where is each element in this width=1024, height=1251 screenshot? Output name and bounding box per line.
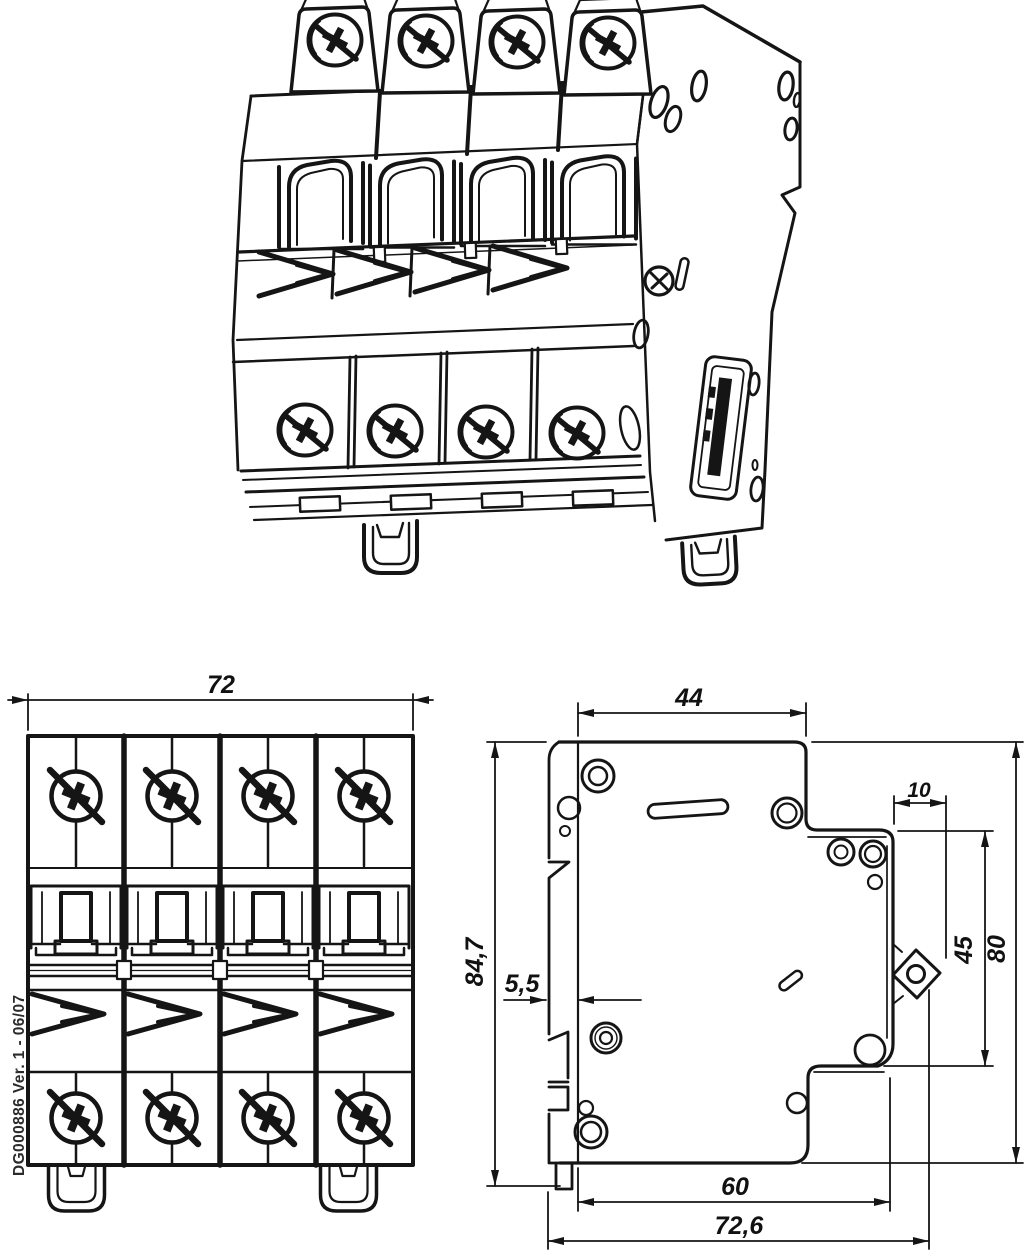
dim-label-front-height: 45 <box>950 935 978 965</box>
front-top-screw-3 <box>242 770 294 822</box>
top-terminal-screw-4 <box>582 18 635 69</box>
top-terminal-screw-2 <box>400 16 453 67</box>
iso-bottom-strips <box>243 465 652 520</box>
side-panel <box>632 6 801 540</box>
bottom-terminal-screw-3 <box>460 407 513 458</box>
front-din-clip-right <box>321 1165 377 1211</box>
terminal-funnel-rim <box>617 405 644 452</box>
iso-arrow-band <box>237 246 633 340</box>
front-bottom-screw-1 <box>50 1092 102 1144</box>
dim-label-total-height: 84,7 <box>461 937 489 987</box>
iso-din-clip-right <box>682 537 737 586</box>
document-code-label: DG000886 Ver. 1 - 06/07 <box>11 994 28 1176</box>
dim-label-total-depth: 72,6 <box>715 1212 765 1240</box>
terminal-screw-side <box>893 950 940 998</box>
front-bottom-screw-2 <box>146 1092 198 1144</box>
iso-left-edge <box>233 96 251 470</box>
front-top-screw-2 <box>146 770 198 822</box>
dim-label-body-height: 80 <box>983 935 1011 963</box>
iso-toggles <box>279 156 636 249</box>
dim-label-top-depth: 44 <box>674 684 703 712</box>
dim-label-rail-plate: 5,5 <box>505 970 541 998</box>
bottom-terminal-screw-1 <box>279 405 332 456</box>
isometric-view <box>233 0 801 585</box>
panel-slot <box>675 258 689 291</box>
panel-hole-small <box>753 460 758 470</box>
dim-label-front-width: 72 <box>207 671 235 699</box>
front-bottom-screw-3 <box>242 1092 294 1144</box>
terminal-clamp-window <box>690 356 753 501</box>
front-bottom-screw-4 <box>338 1092 390 1144</box>
front-top-screw-1 <box>50 770 102 822</box>
front-top-screw-4 <box>338 770 390 822</box>
side-view: 44 10 84,7 5,5 45 80 60 <box>461 684 1023 1249</box>
bottom-terminal-screw-2 <box>369 406 422 457</box>
side-body-outline <box>559 742 893 1163</box>
flange-hole-small <box>793 93 801 108</box>
panel-hole <box>632 319 651 349</box>
dim-label-front-step: 10 <box>907 779 931 802</box>
dim-label-body-depth: 60 <box>721 1173 749 1201</box>
front-din-clip-left <box>49 1165 105 1211</box>
iso-din-clip-left <box>364 521 417 573</box>
top-terminal-screw-1 <box>309 15 362 66</box>
top-terminal-screw-3 <box>491 17 544 68</box>
technical-drawing-page: 72 DG000886 Ver. 1 - 06/07 <box>0 0 1024 1251</box>
panel-hole <box>690 70 709 102</box>
front-view: 72 DG000886 Ver. 1 - 06/07 <box>8 671 433 1211</box>
flange-hole <box>784 117 799 140</box>
dim-front-step <box>894 796 946 958</box>
iso-bottom-terminals <box>233 346 643 471</box>
flange-hole <box>777 71 795 101</box>
bottom-terminal-screw-4 <box>551 408 604 459</box>
breaker-drawing-svg: 72 DG000886 Ver. 1 - 06/07 <box>0 0 1024 1251</box>
iso-top-terminals <box>291 0 651 95</box>
dim-front-width <box>8 694 433 730</box>
